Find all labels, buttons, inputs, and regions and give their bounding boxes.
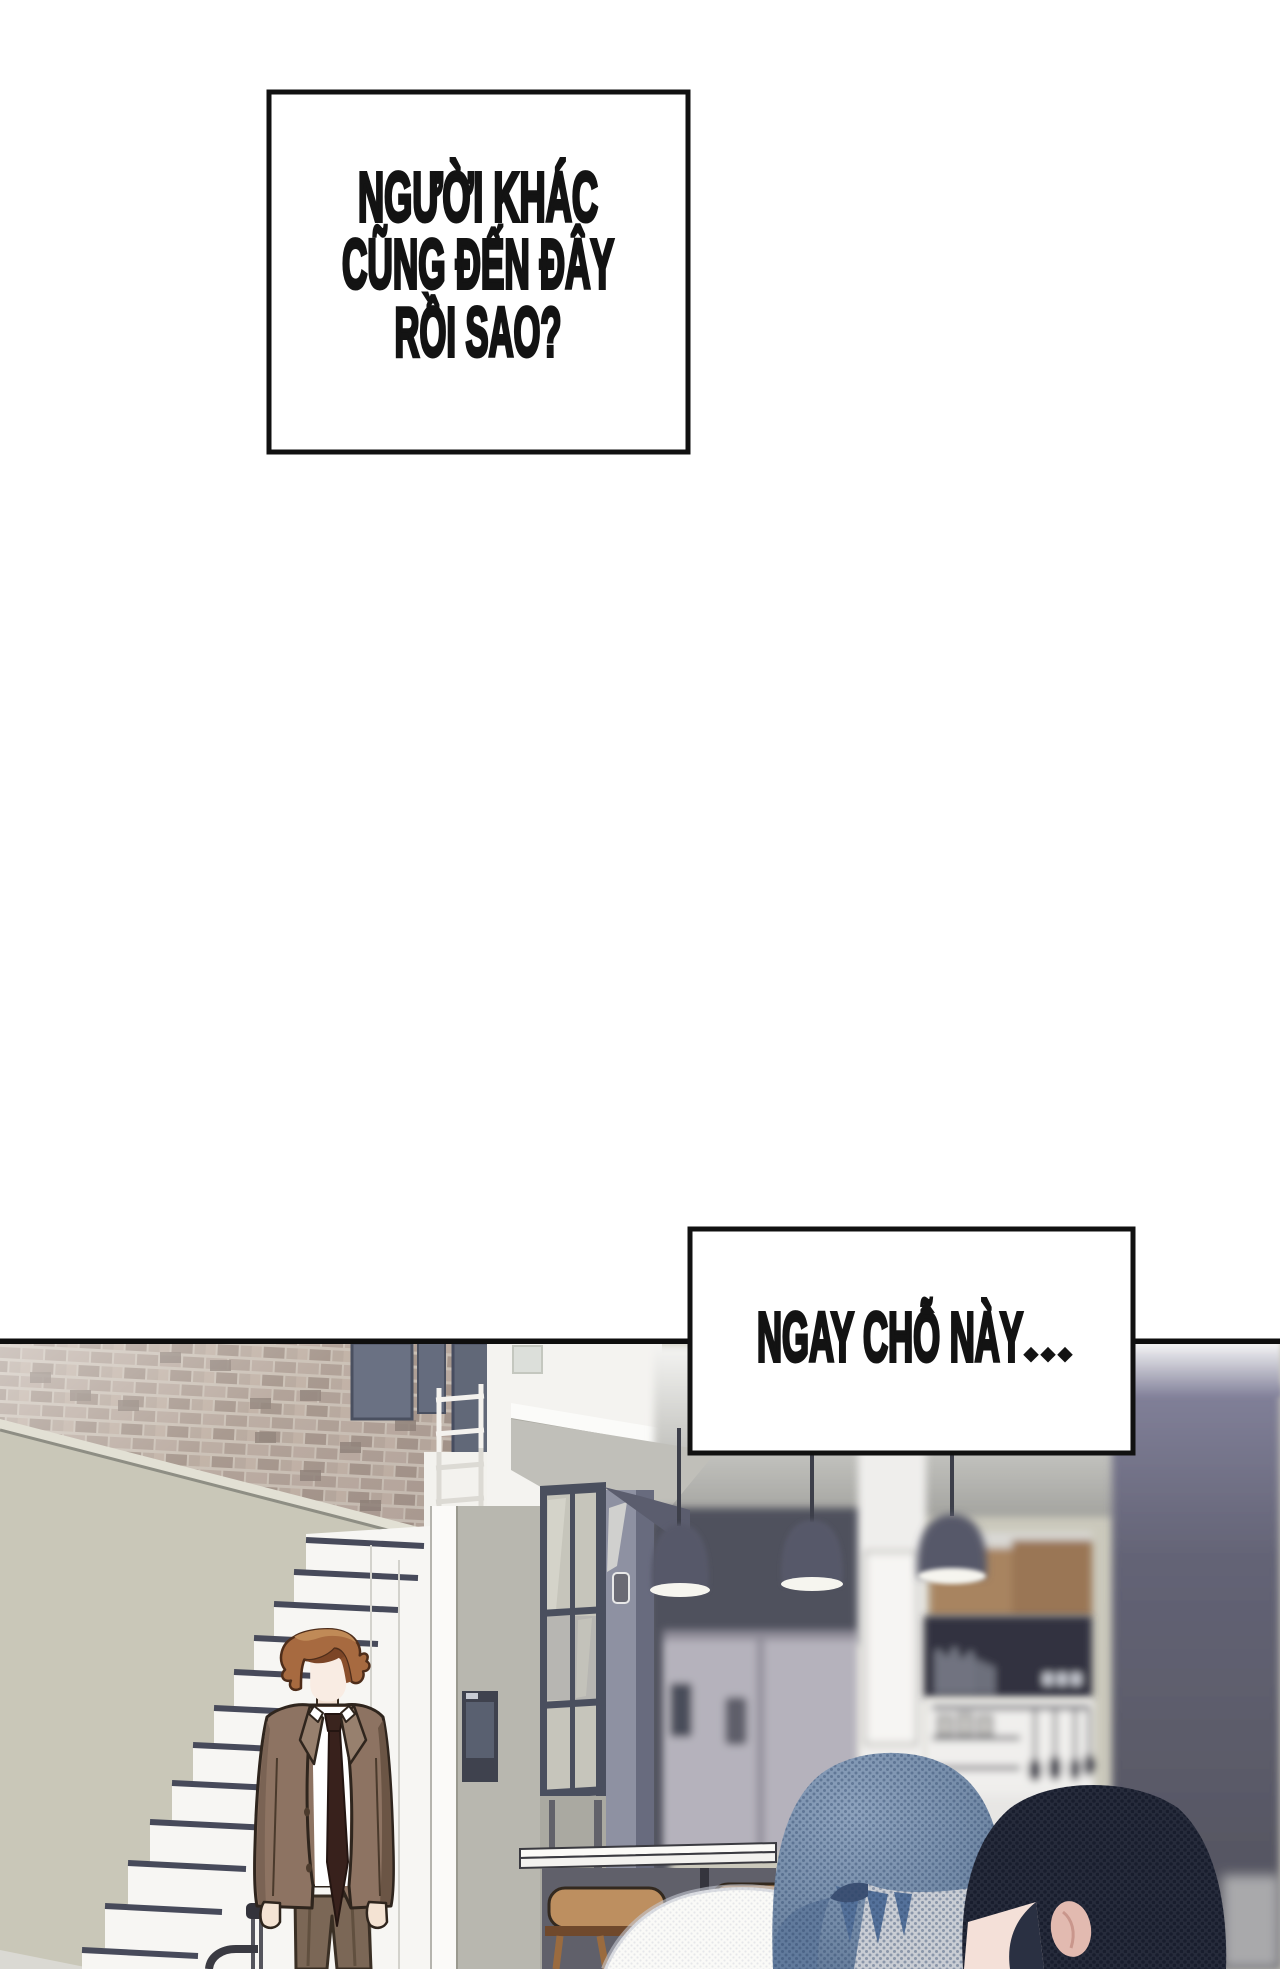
svg-text:NGAY CHỖ NÀY: NGAY CHỖ NÀY: [757, 1297, 1023, 1376]
svg-text:CŨNG ĐẾN ĐÂY: CŨNG ĐẾN ĐÂY: [342, 224, 614, 303]
svg-text:RỒI SAO?: RỒI SAO?: [395, 293, 562, 371]
